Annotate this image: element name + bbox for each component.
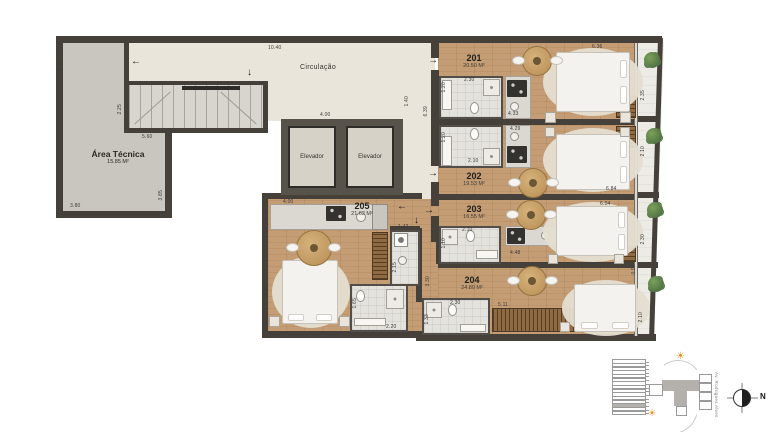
unit-204-label: 204 24.80 M² [450,276,494,292]
wall [431,70,439,166]
wall [124,81,268,85]
bed-icon [282,260,338,324]
dim: 3.80 [70,203,81,209]
sun-icon: ☀ [676,352,685,362]
chair-icon [550,56,563,65]
dim: 2.35 [640,90,646,101]
dim: 4.48 [510,250,521,256]
dim: 5.11 [498,302,508,308]
dim: 2.15 [392,262,398,273]
sink-icon [510,102,519,111]
cooktop-icon [507,146,527,163]
plant-icon [644,52,660,68]
key-plan-room [699,401,712,410]
area-tecnica-floor [62,43,128,212]
nightstand-icon [614,254,624,264]
pillow-icon [612,322,629,329]
street-label: Av. Rodrigues Alves [714,372,719,426]
dim: 2.10 [638,312,644,323]
dim: 3.85 [158,190,164,201]
cooktop-icon [507,228,525,244]
chair-icon [545,276,558,285]
dim: 0.95 [631,264,637,275]
vanity-icon [476,250,498,259]
pillow-icon [581,322,598,329]
pillow-icon [618,234,625,250]
area-tecnica-label: Área Técnica 15.85 M² [72,150,164,166]
bed-icon [556,134,630,190]
unit-201-label: 201 20.50 M² [452,54,496,70]
wall [263,81,268,133]
area-tecnica-name: Área Técnica [72,150,164,159]
dim: 2.10 [640,146,646,157]
dim: 2.25 [117,104,123,115]
key-plan-room [676,406,687,416]
entry-arrow-201-icon: → [428,56,438,66]
cooktop-icon [507,80,527,97]
entry-arrow-203-icon: → [424,206,434,216]
nightstand-icon [269,316,280,327]
dim: 6.84 [606,186,617,192]
chair-icon [507,276,520,285]
pillow-icon [620,141,627,158]
chair-icon [508,178,521,187]
stair-arrow-down-icon: ↓ [247,68,252,78]
dim: 2.10 [462,227,473,233]
entry-arrow-left-icon: ← [131,57,141,67]
wall [416,334,656,341]
dim: 4.33 [508,111,519,117]
nightstand-icon [545,127,555,137]
floor-stack-indicator [612,360,646,426]
nightstand-icon [620,127,630,137]
dim: 4.40 [264,286,270,297]
dining-table-icon [296,230,332,266]
plant-icon [646,128,662,144]
dim: 1.20 [441,82,447,93]
toilet-icon [470,128,479,140]
plant-icon [647,202,663,218]
chair-icon [286,243,299,252]
wall [431,216,439,242]
pillow-icon [620,86,627,104]
dim: 2.30 [640,234,646,245]
sun-icon: ☀ [648,408,656,418]
wall [262,196,268,338]
key-plan-room [649,384,663,396]
bed-icon [574,284,636,332]
elevator-2-label: Elevador [358,154,382,160]
chair-icon [512,56,525,65]
dim: 2.20 [386,324,397,330]
dim: 5.60 [142,134,153,140]
dim: 10.40 [268,45,282,51]
entry-arrow-202-icon: → [428,169,438,179]
dim: 1.42 [398,224,409,230]
stair-handrail [182,86,240,90]
wall [56,211,172,218]
dim: 1.40 [404,96,410,107]
vanity-icon [460,324,486,332]
key-plan-room [699,383,712,392]
wall [124,43,129,79]
key-plan-room [699,392,712,401]
plant-icon [648,276,664,292]
wall [262,331,422,338]
vanity-icon [354,318,386,326]
nightstand-icon [560,322,570,332]
nightstand-icon [620,112,631,123]
floor-row [612,411,646,415]
bed-icon [556,52,630,112]
dim: 2.30 [464,77,475,83]
pillow-icon [618,212,625,228]
dim: 1.20 [441,132,447,143]
dim: 3.30 [425,276,431,287]
wall [124,128,268,133]
dim: 2.30 [450,300,461,306]
dim: 6.39 [423,106,429,117]
toilet-icon [470,102,479,114]
floor-plan-canvas: Elevador Elevador [0,0,768,432]
dim: 1.33 [424,314,430,325]
north-label: N [760,392,766,401]
chair-icon [546,178,559,187]
entry-arrow-204-icon: ↓ [414,216,419,226]
dim: 6.04 [600,201,611,207]
dim: 5.45 [58,60,64,71]
dining-table-icon [517,266,547,296]
wall [56,36,662,43]
dining-table-icon [522,46,552,76]
dim: 1.65 [352,298,358,309]
dim: 6.36 [592,44,603,50]
closet-205 [372,232,388,280]
nightstand-icon [339,316,350,327]
shower-icon [483,148,500,165]
key-plan-common-area [674,390,687,406]
key-plan: ☀ ☀ [648,366,712,424]
dining-table-icon [518,168,548,198]
bed-icon [556,206,628,256]
nightstand-icon [545,112,556,123]
dim: 4.00 [320,112,331,118]
unit-202-label: 202 19.53 M² [452,172,496,188]
entry-arrow-205-icon: ← [397,202,407,212]
dining-table-icon [516,200,546,230]
key-plan-room [699,374,712,383]
chair-icon [506,210,519,219]
staircase [129,85,263,128]
unit-203-label: 203 16.55 M² [452,205,496,221]
dim: 4.00 [283,199,294,205]
sink-icon [510,132,519,141]
sink-icon [398,256,407,265]
shower-icon [483,79,500,96]
area-tecnica-area: 15.85 M² [72,159,164,166]
unit-205-label: 205 21.62 M² [342,202,382,218]
pillow-icon [620,60,627,78]
nightstand-icon [548,254,558,264]
wall [165,131,172,218]
chair-icon [328,243,341,252]
dim: 2.10 [468,158,479,164]
pillow-icon [620,166,627,183]
circulation-label: Circulação [300,64,336,71]
dim: 4.29 [510,126,521,132]
washer-icon [394,233,408,247]
elevator-1-label: Elevador [300,154,324,160]
chair-icon [544,210,557,219]
dim: 1.10 [441,238,447,249]
elevator-2: Elevador [346,126,394,188]
wall [124,79,129,133]
pillow-icon [316,314,332,321]
pillow-icon [288,314,304,321]
shower-icon [386,289,404,309]
elevator-1: Elevador [288,126,336,188]
